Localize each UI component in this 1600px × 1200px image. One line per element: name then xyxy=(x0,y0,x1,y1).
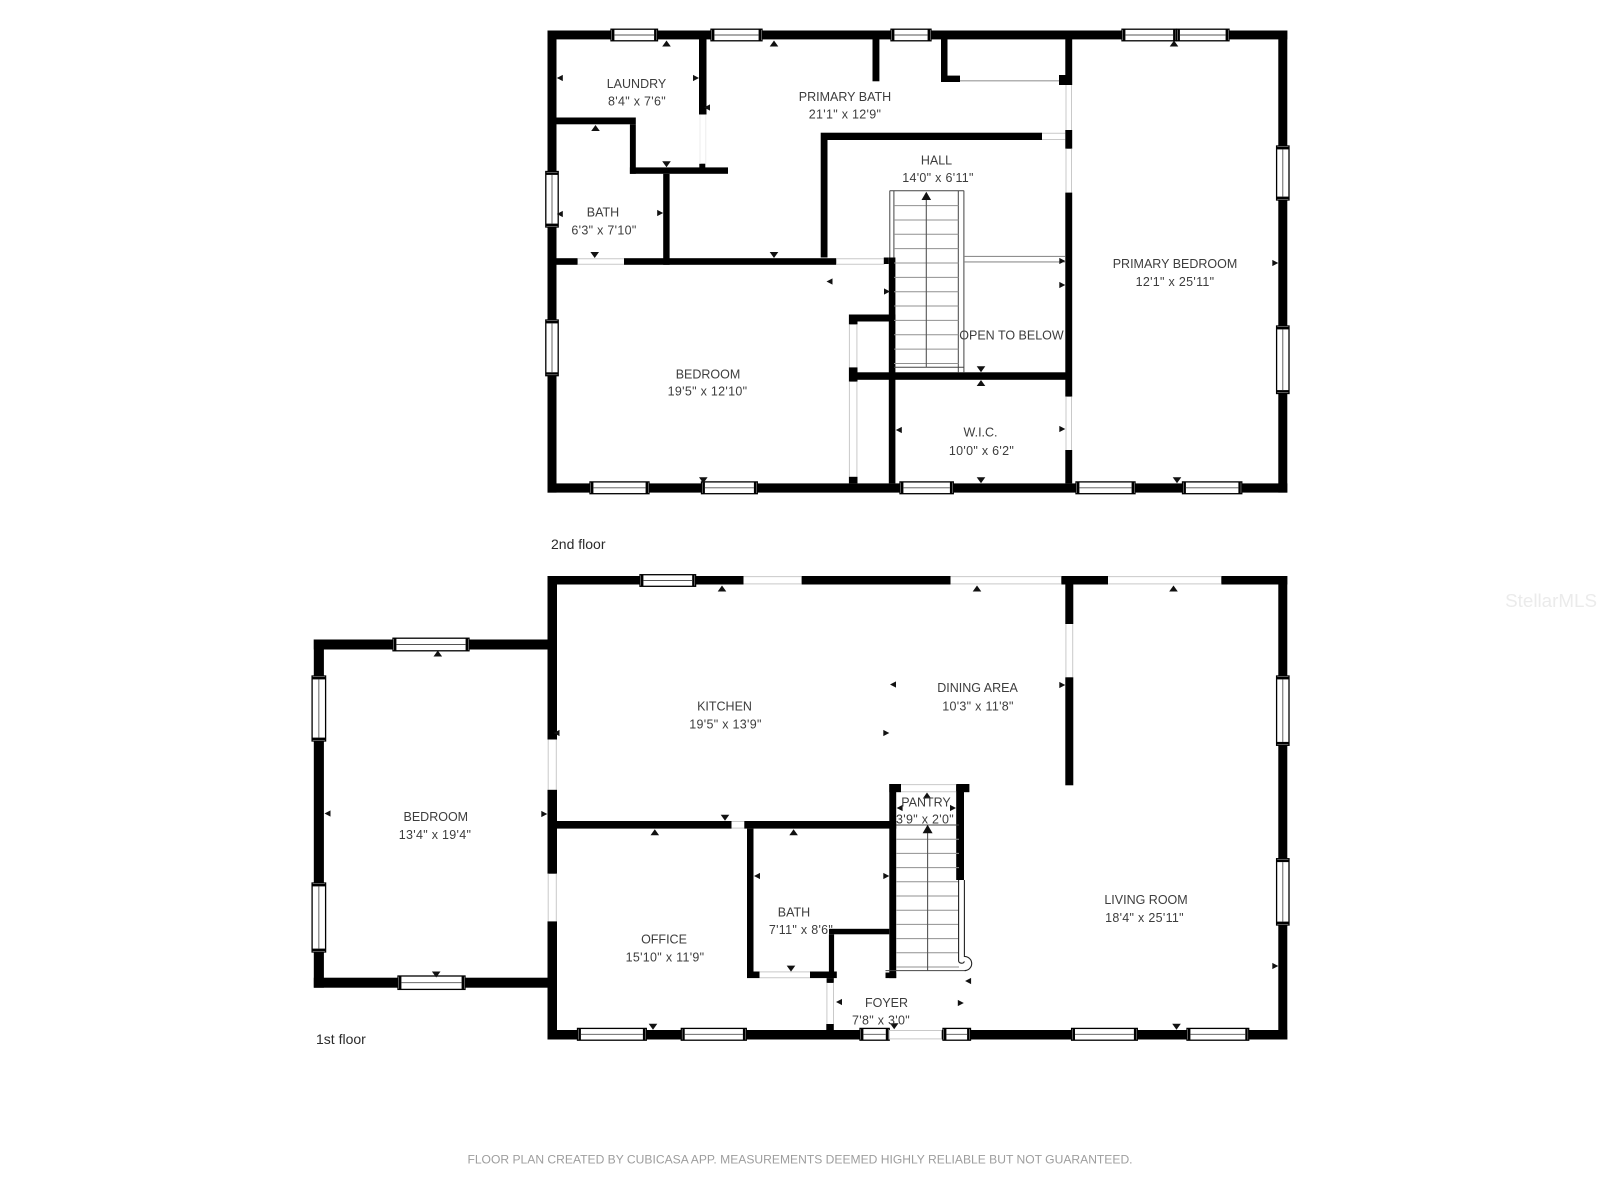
svg-text:7'8" x 3'0": 7'8" x 3'0" xyxy=(852,1013,910,1027)
svg-text:7'11" x 8'6": 7'11" x 8'6" xyxy=(769,923,833,937)
svg-text:18'4" x 25'11": 18'4" x 25'11" xyxy=(1105,911,1184,925)
svg-text:LAUNDRY: LAUNDRY xyxy=(607,77,667,91)
svg-text:W.I.C.: W.I.C. xyxy=(963,425,997,439)
svg-text:PANTRY: PANTRY xyxy=(901,795,951,809)
svg-text:LIVING ROOM: LIVING ROOM xyxy=(1104,893,1187,907)
svg-text:FOYER: FOYER xyxy=(865,996,908,1010)
svg-text:DINING AREA: DINING AREA xyxy=(937,681,1018,695)
svg-text:HALL: HALL xyxy=(921,153,952,167)
svg-text:19'5" x 12'10": 19'5" x 12'10" xyxy=(668,384,748,398)
svg-text:2nd floor: 2nd floor xyxy=(551,536,606,552)
svg-text:OPEN TO BELOW: OPEN TO BELOW xyxy=(959,328,1064,342)
svg-text:10'3" x 11'8": 10'3" x 11'8" xyxy=(942,699,1014,713)
svg-text:8'4" x 7'6": 8'4" x 7'6" xyxy=(608,94,666,108)
svg-text:OFFICE: OFFICE xyxy=(641,932,687,946)
svg-text:15'10" x 11'9": 15'10" x 11'9" xyxy=(626,950,705,964)
svg-text:3'9" x 2'0": 3'9" x 2'0" xyxy=(896,812,954,826)
svg-text:12'1" x 25'11": 12'1" x 25'11" xyxy=(1136,275,1215,289)
svg-text:21'1" x 12'9": 21'1" x 12'9" xyxy=(809,107,881,121)
svg-text:1st floor: 1st floor xyxy=(316,1031,366,1047)
svg-text:PRIMARY BEDROOM: PRIMARY BEDROOM xyxy=(1113,257,1238,271)
svg-text:BEDROOM: BEDROOM xyxy=(676,367,741,381)
svg-text:PRIMARY BATH: PRIMARY BATH xyxy=(799,90,891,104)
svg-text:KITCHEN: KITCHEN xyxy=(697,699,752,713)
svg-text:14'0" x 6'11": 14'0" x 6'11" xyxy=(902,171,974,185)
svg-text:BATH: BATH xyxy=(587,205,619,219)
svg-text:BEDROOM: BEDROOM xyxy=(404,810,469,824)
svg-text:6'3" x 7'10": 6'3" x 7'10" xyxy=(571,223,636,237)
svg-text:FLOOR PLAN CREATED BY CUBICASA: FLOOR PLAN CREATED BY CUBICASA APP. MEAS… xyxy=(467,1153,1132,1167)
svg-text:10'0" x 6'2": 10'0" x 6'2" xyxy=(949,444,1014,458)
svg-text:BATH: BATH xyxy=(778,905,810,919)
svg-text:StellarMLS: StellarMLS xyxy=(1505,590,1597,611)
svg-text:19'5" x 13'9": 19'5" x 13'9" xyxy=(689,717,761,731)
svg-text:13'4" x 19'4": 13'4" x 19'4" xyxy=(399,828,471,842)
